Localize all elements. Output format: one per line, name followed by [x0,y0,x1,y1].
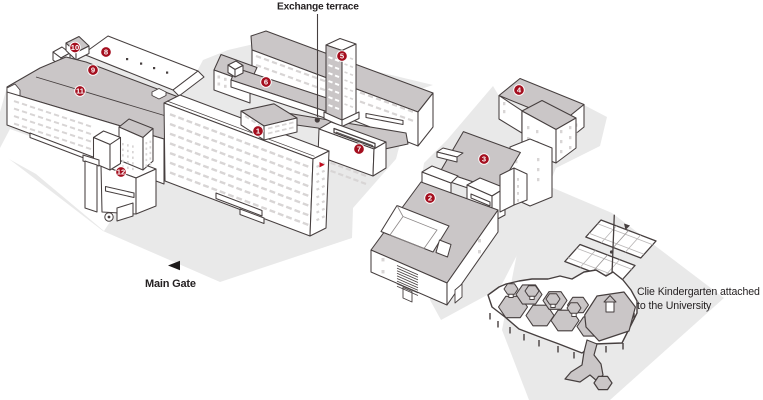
svg-text:12: 12 [117,168,125,177]
svg-text:to the University: to the University [637,300,712,312]
svg-text:10: 10 [71,43,79,52]
svg-text:Exchange terrace: Exchange terrace [277,2,359,13]
svg-text:7: 7 [357,145,361,154]
svg-text:9: 9 [91,66,95,75]
svg-text:3: 3 [482,155,486,164]
svg-text:8: 8 [104,48,108,57]
svg-text:6: 6 [264,78,268,87]
svg-text:11: 11 [76,87,85,96]
svg-text:2: 2 [428,194,432,203]
svg-text:Main Gate: Main Gate [145,278,196,290]
svg-text:Clie Kindergarten attached: Clie Kindergarten attached [637,286,760,298]
